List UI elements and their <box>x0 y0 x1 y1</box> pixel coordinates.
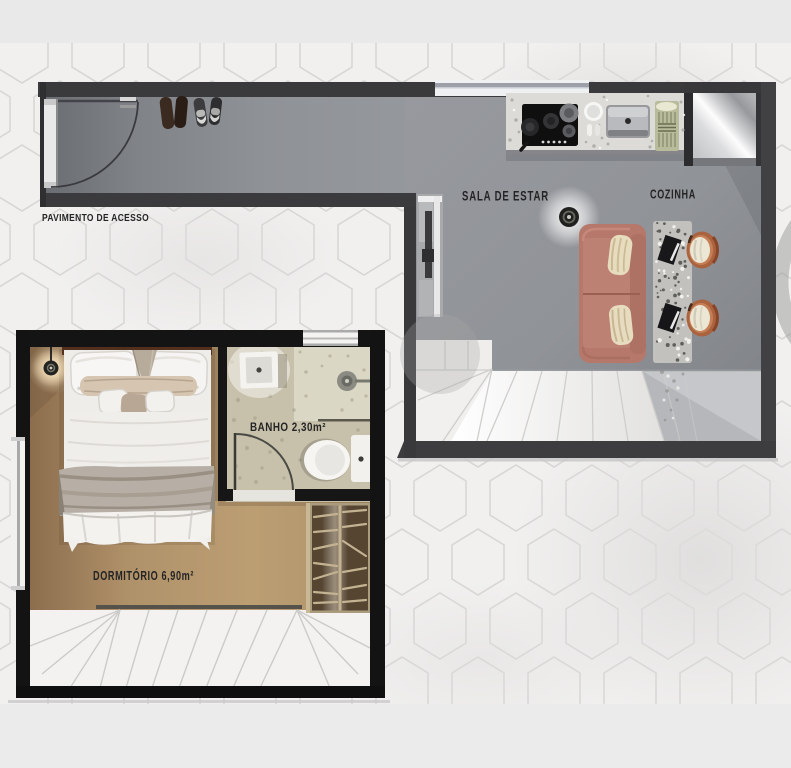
svg-text:BANHO 2,30m²: BANHO 2,30m² <box>250 422 326 434</box>
svg-text:COZINHA: COZINHA <box>650 187 696 202</box>
svg-text:DORMITÓRIO 6,90m²: DORMITÓRIO 6,90m² <box>93 568 194 583</box>
svg-text:PAVIMENTO DE ACESSO: PAVIMENTO DE ACESSO <box>42 213 149 224</box>
svg-text:SALA DE ESTAR: SALA DE ESTAR <box>462 189 549 204</box>
